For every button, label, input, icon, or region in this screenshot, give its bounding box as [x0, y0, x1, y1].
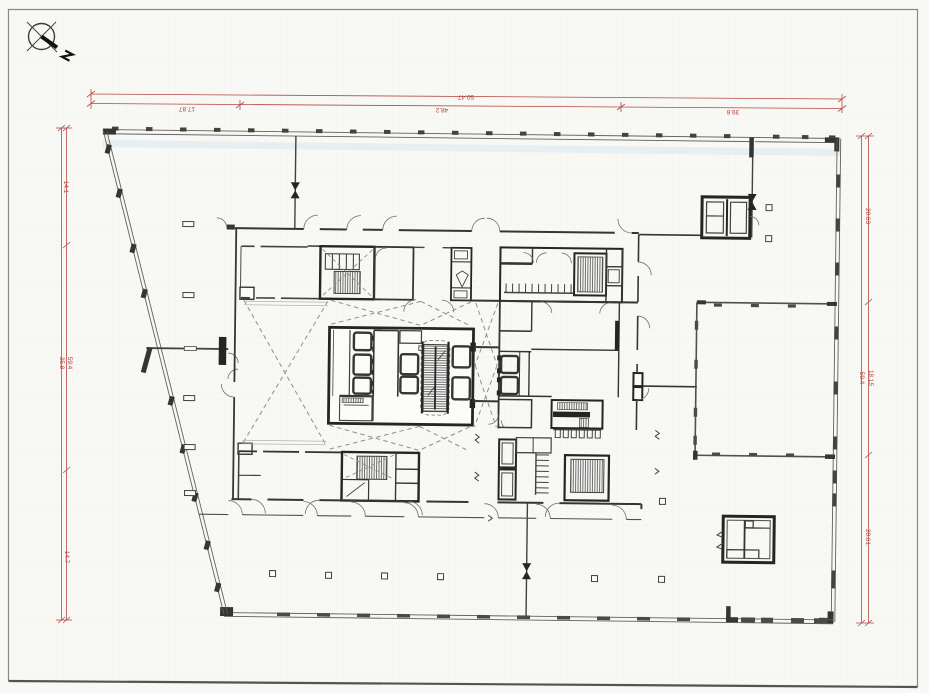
svg-text:20.63: 20.63	[864, 208, 871, 224]
svg-text:17.87: 17.87	[179, 105, 195, 112]
svg-text:14.1: 14.1	[62, 181, 69, 194]
svg-text:18.15: 18.15	[867, 370, 874, 386]
svg-text:20.61: 20.61	[864, 529, 871, 545]
svg-text:39.8: 39.8	[726, 108, 739, 115]
svg-text:14.7: 14.7	[63, 551, 70, 564]
svg-text:50.47: 50.47	[458, 93, 474, 100]
svg-text:48.2: 48.2	[435, 106, 448, 113]
svg-text:35.8: 35.8	[58, 357, 65, 370]
svg-text:59.4: 59.4	[858, 372, 865, 385]
svg-text:59.4: 59.4	[66, 357, 73, 370]
